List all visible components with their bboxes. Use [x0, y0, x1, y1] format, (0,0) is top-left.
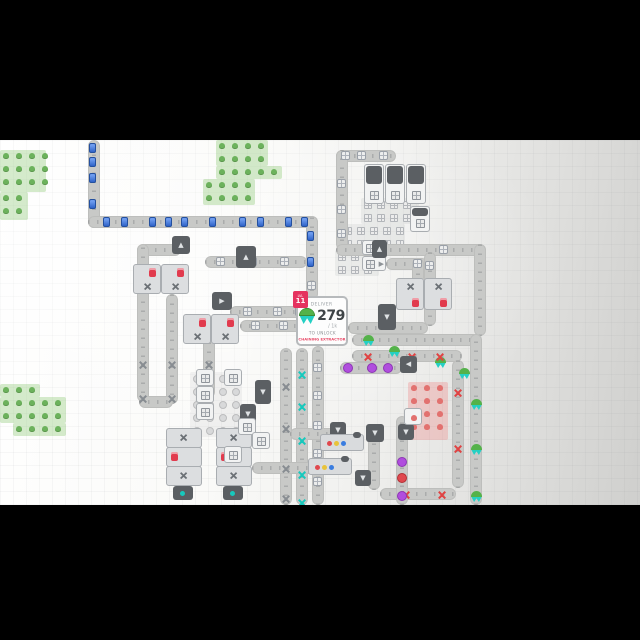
to-unlock-label: TO UNLOCK: [308, 331, 335, 336]
delivered-amount: 279: [317, 308, 345, 324]
game-screenshot: ××××××××××××××××××××× ▶▶××××××▲▶▲▲▼◀▼▼▼▼…: [0, 0, 640, 640]
goal-total: / 1k: [328, 324, 337, 330]
level-badge: LVL 11: [293, 291, 308, 308]
letterbox-top: [0, 0, 640, 140]
hub-layer: LVL 11 DELIVER 279 / 1k TO UNLOCK CHAINI…: [0, 140, 640, 505]
reward-name: CHAINING EXTRACTOR: [298, 337, 345, 341]
goal-shape-icon: [299, 308, 315, 324]
hub[interactable]: LVL 11 DELIVER 279 / 1k TO UNLOCK CHAINI…: [296, 296, 348, 346]
level-badge-label: LVL: [298, 294, 303, 297]
deliver-label: DELIVER: [311, 302, 333, 307]
level-badge-number: 11: [296, 298, 306, 305]
goal-row: 279: [299, 308, 345, 324]
letterbox-bottom: [0, 505, 640, 640]
game-viewport[interactable]: ××××××××××××××××××××× ▶▶××××××▲▶▲▲▼◀▼▼▼▼…: [0, 140, 640, 505]
